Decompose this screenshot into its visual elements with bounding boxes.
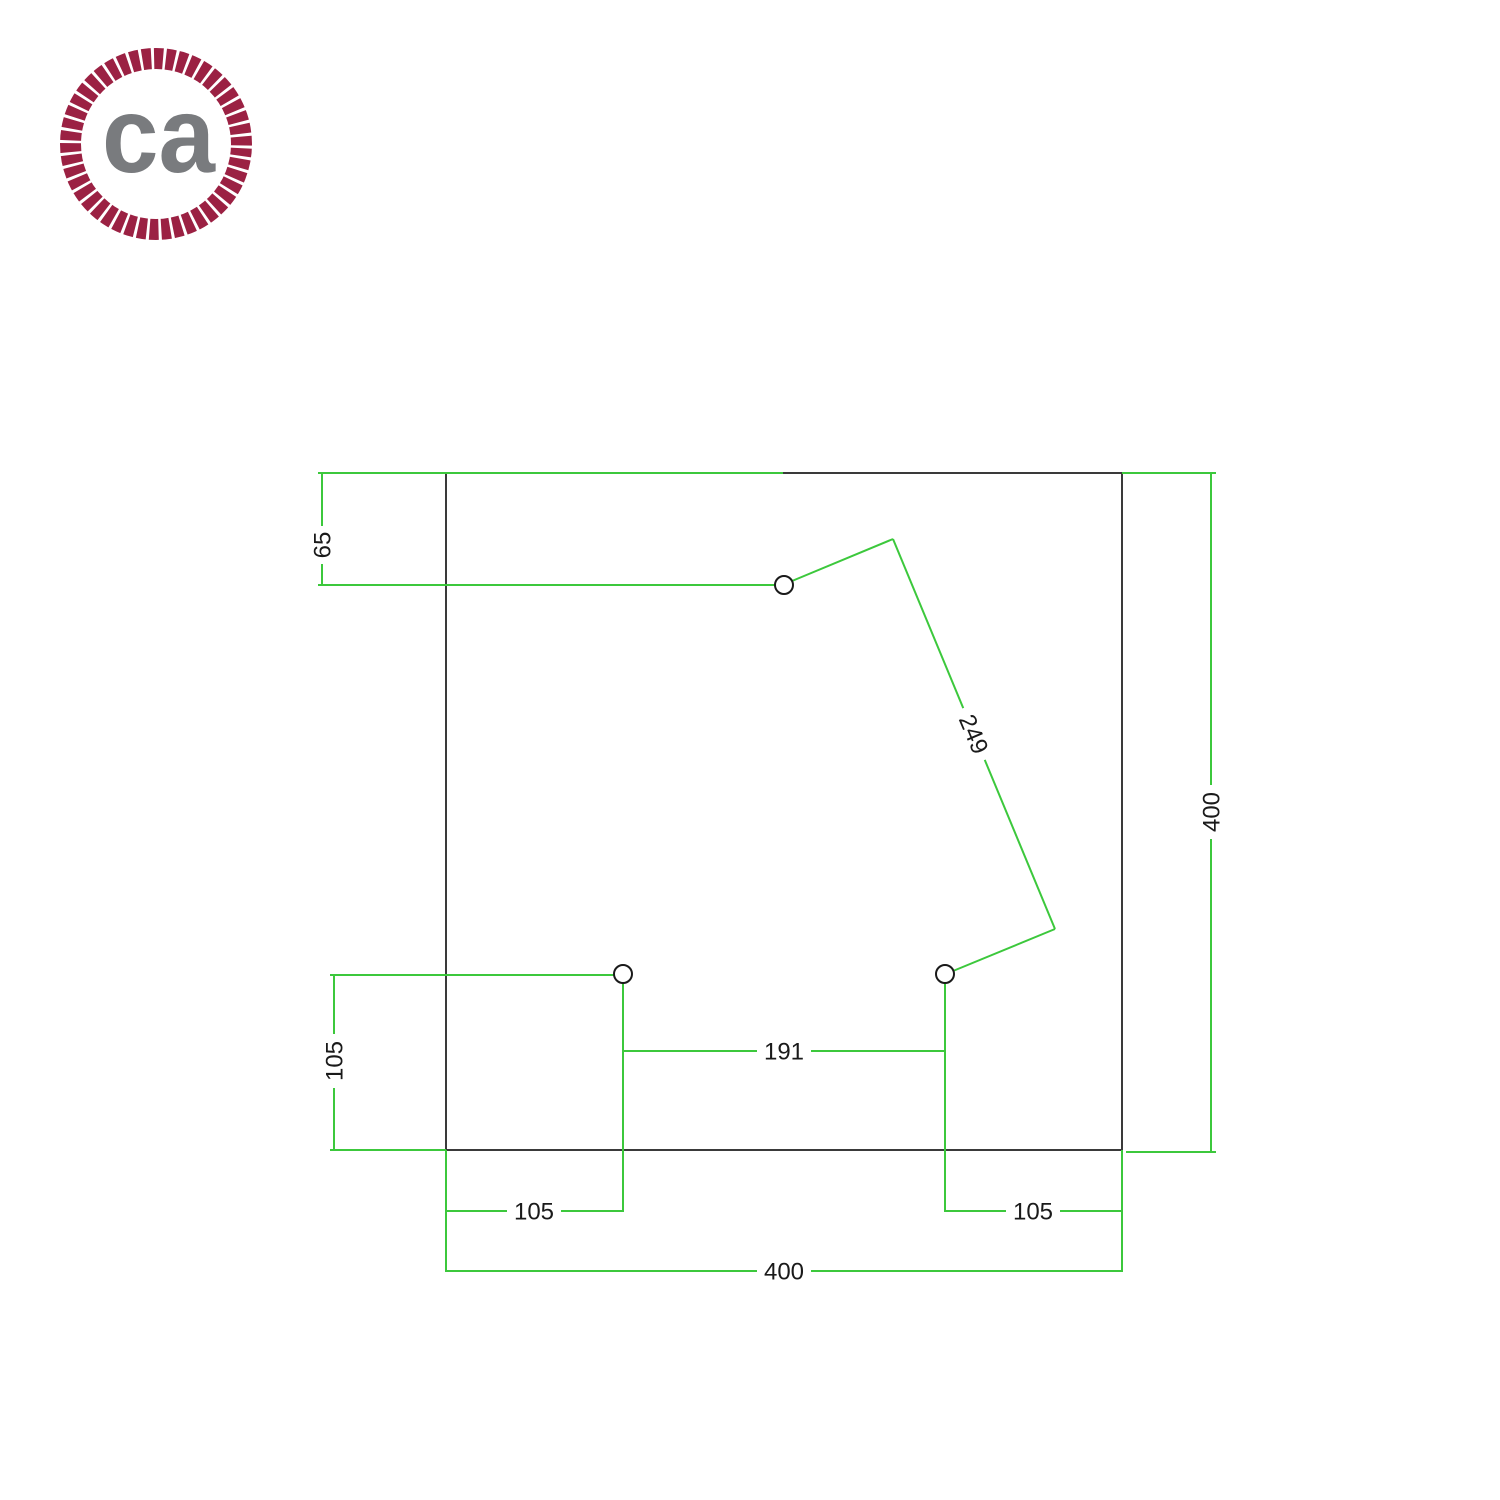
svg-text:105: 105 xyxy=(1013,1199,1053,1226)
dim-label-400-bottom: 400 xyxy=(757,1258,811,1286)
svg-text:400: 400 xyxy=(764,1259,804,1286)
dim-label-65: 65 xyxy=(309,526,337,564)
hole-bottom-left xyxy=(614,965,632,983)
hole-top xyxy=(775,576,793,594)
product-dimension-image: ca xyxy=(0,0,1500,1500)
hole-bottom-right xyxy=(936,965,954,983)
dim-label-105-bottom-right: 105 xyxy=(1006,1198,1060,1226)
dim-label-105-left: 105 xyxy=(321,1034,349,1088)
dim-label-249: 249 xyxy=(950,703,997,765)
svg-text:65: 65 xyxy=(310,532,337,559)
dim-label-400-right: 400 xyxy=(1198,785,1226,839)
dim-top-to-bottom-right-hole xyxy=(792,539,1055,971)
dim-bottom-left-hole-offset xyxy=(446,983,623,1212)
dim-bottom-right-hole-offset xyxy=(945,983,1122,1212)
svg-text:105: 105 xyxy=(514,1199,554,1226)
svg-text:400: 400 xyxy=(1199,792,1226,832)
dim-top-hole-offset xyxy=(318,473,783,585)
dim-label-191: 191 xyxy=(757,1038,811,1066)
svg-text:105: 105 xyxy=(322,1041,349,1081)
svg-text:191: 191 xyxy=(764,1039,804,1066)
dimension-drawing: 65 105 400 400 105 105 191 249 xyxy=(0,0,1500,1500)
dim-left-hole-vertical-offset xyxy=(330,975,614,1150)
dim-label-105-bottom-left: 105 xyxy=(507,1198,561,1226)
